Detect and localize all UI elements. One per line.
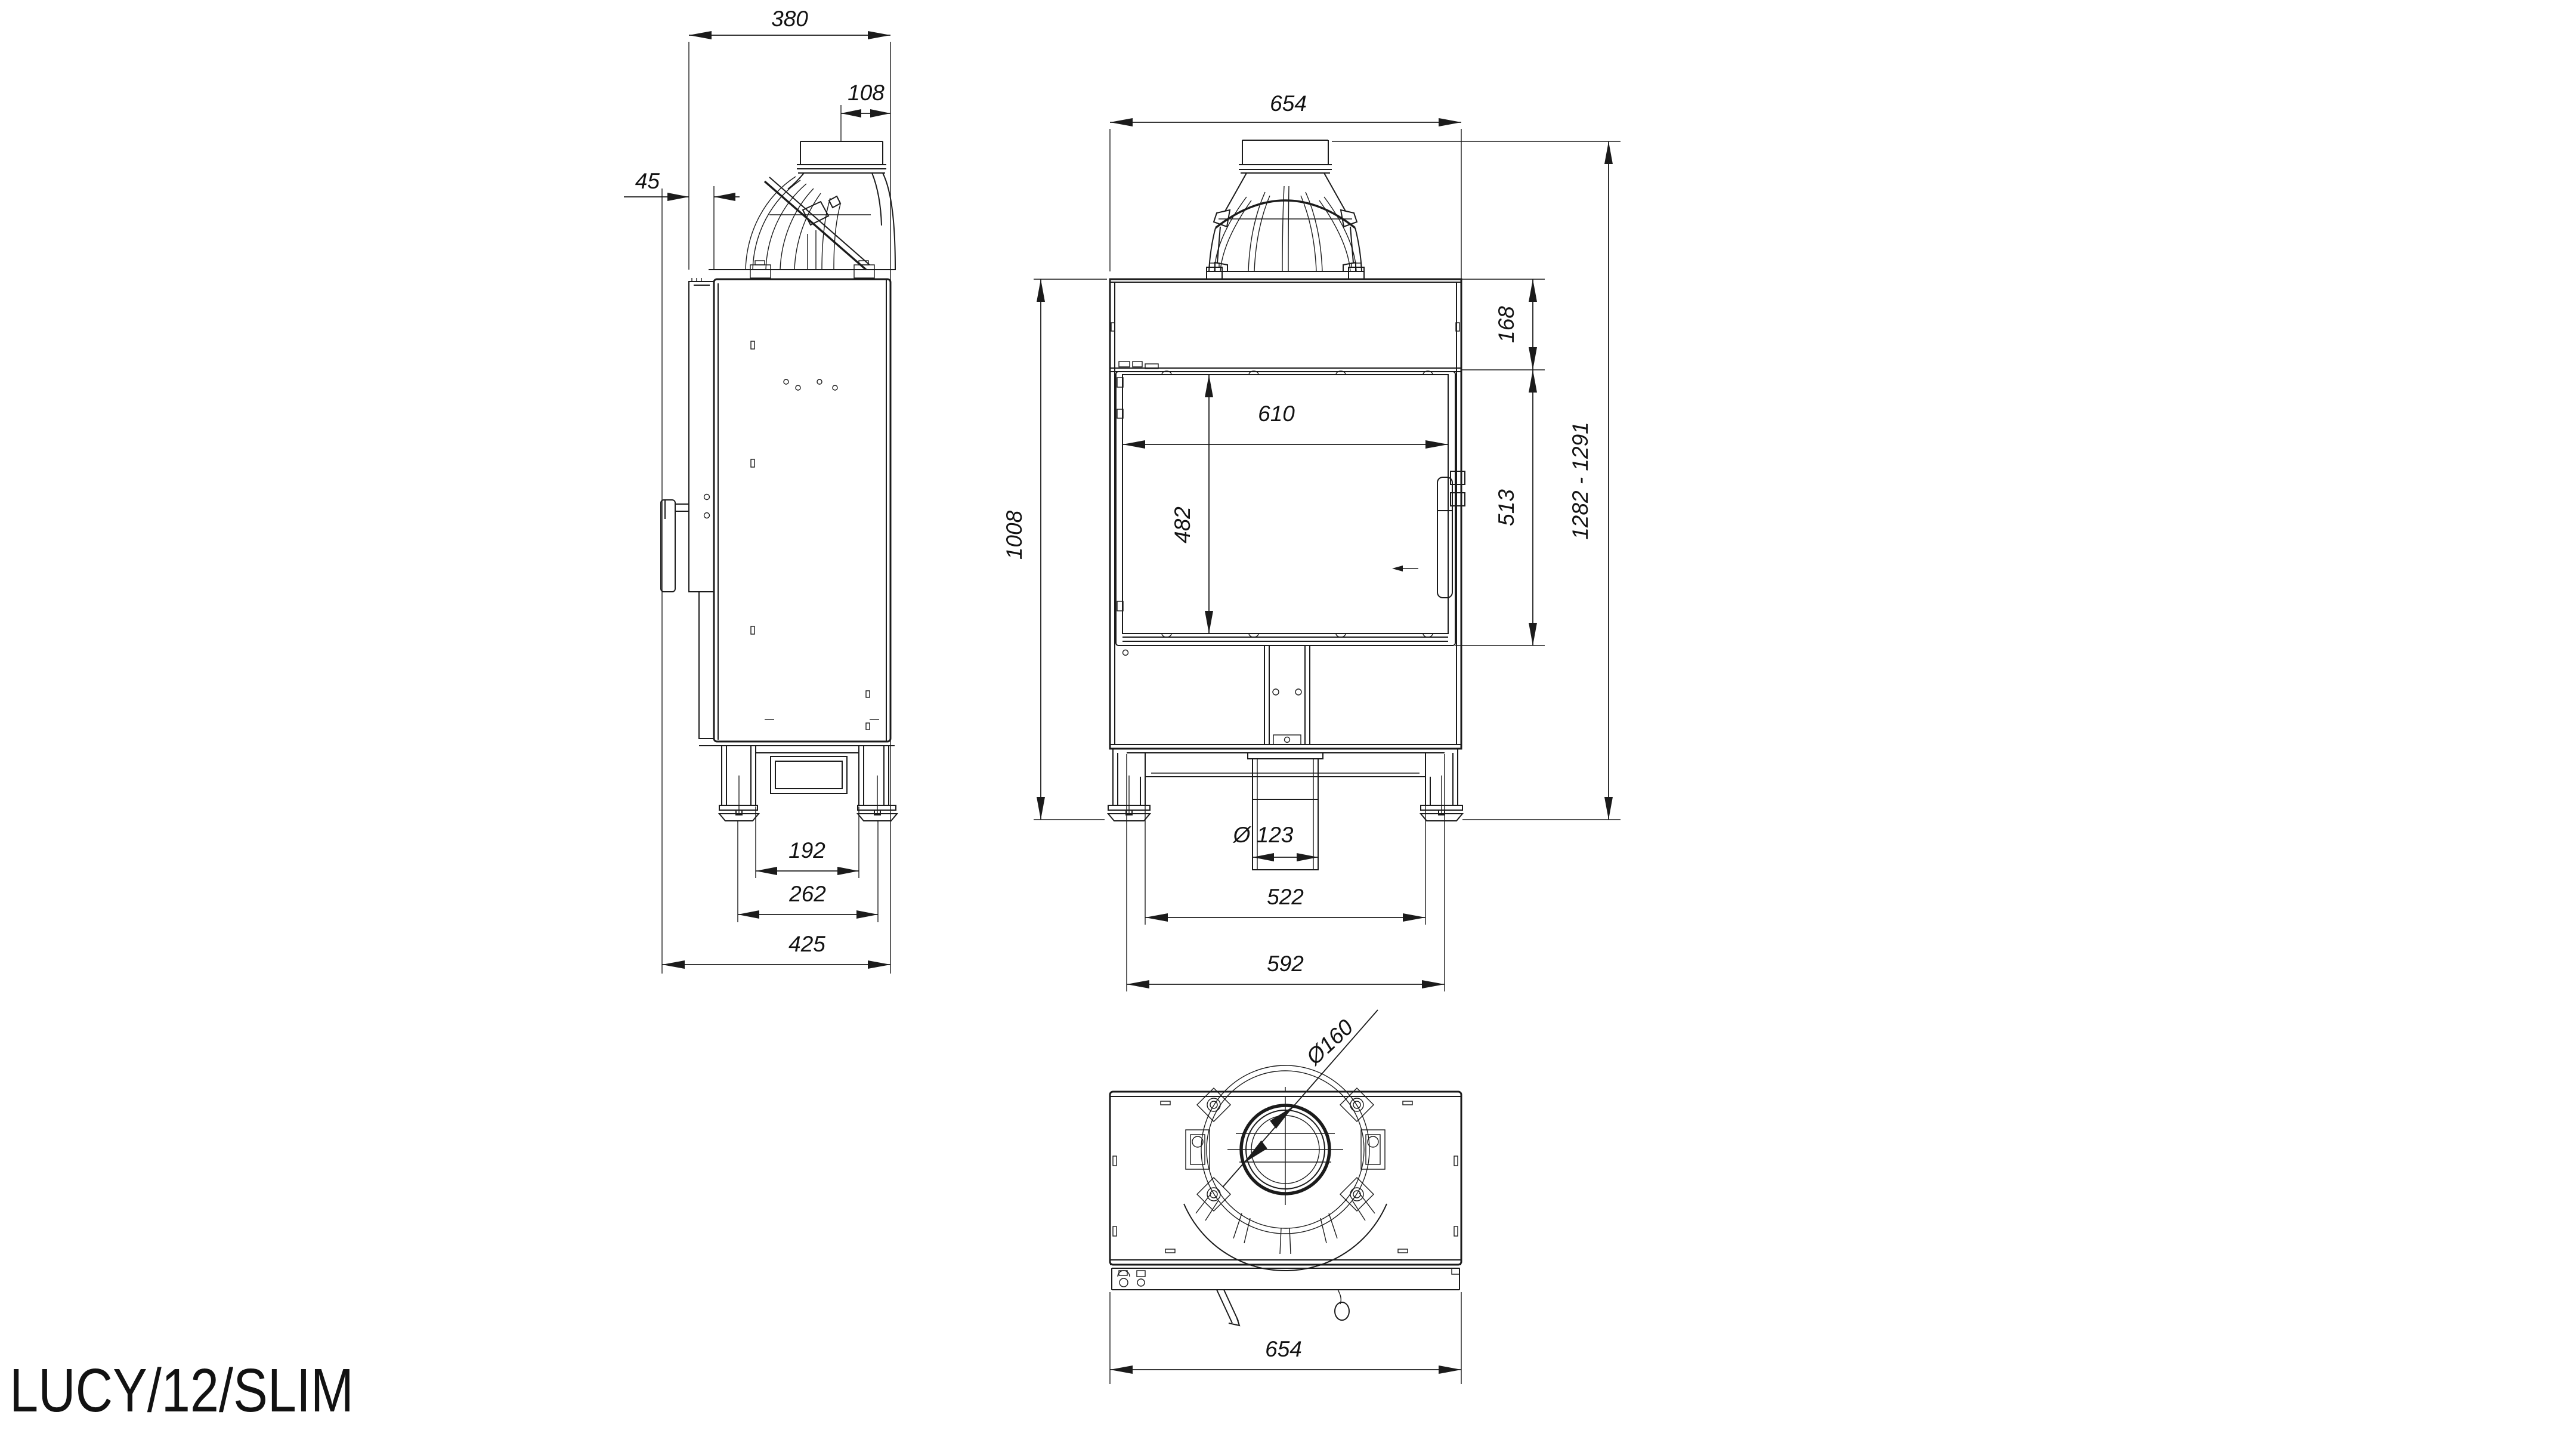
side-dim-flue-offset-label: 108 — [848, 81, 885, 105]
side-dim-body-depth: 380 — [689, 7, 890, 39]
top-dim-width-label: 654 — [1265, 1337, 1302, 1361]
side-door — [661, 278, 714, 739]
front-lever-arrow — [1392, 566, 1418, 571]
side-dim-door-protrusion-label: 45 — [635, 169, 660, 193]
front-flue-funnel — [1207, 140, 1364, 279]
front-pedestal — [1264, 645, 1310, 744]
front-dim-door-height: 513 — [1494, 370, 1537, 645]
front-dim-glass-height: 482 — [1170, 375, 1213, 634]
front-air-intake-pipe — [1248, 753, 1323, 870]
front-dim-body-height: 1008 — [1002, 279, 1045, 820]
side-extension-lines — [662, 42, 890, 974]
front-dim-glass-width: 610 — [1122, 401, 1448, 449]
side-dim-body-depth-label: 380 — [771, 7, 808, 31]
front-firebox-door: 610 482 — [1116, 371, 1465, 656]
side-dim-feet-centers: 262 — [738, 882, 878, 919]
side-dim-feet-inner: 192 — [756, 838, 859, 875]
front-dim-intake: Ø 123 — [1232, 823, 1318, 861]
side-dim-overall-depth-label: 425 — [788, 932, 825, 956]
front-base — [1108, 749, 1462, 870]
technical-drawing-page: 380 108 45 — [0, 0, 2576, 1449]
side-dim-overall-depth: 425 — [662, 932, 890, 969]
side-door-handle — [661, 500, 689, 592]
front-view: 654 — [1002, 91, 1621, 991]
side-dim-feet-inner-label: 192 — [788, 838, 825, 863]
front-dim-top-band-label: 168 — [1494, 306, 1519, 343]
side-feet — [719, 776, 897, 821]
drawing-title-text: LUCY/12/SLIM — [10, 1357, 354, 1425]
front-funnel-base — [1207, 263, 1364, 279]
side-body-slots — [751, 341, 879, 730]
front-body — [1110, 279, 1461, 749]
front-dim-intake-label: Ø 123 — [1232, 823, 1294, 847]
side-dim-feet-centers-label: 262 — [788, 882, 826, 906]
side-flue-brace — [765, 177, 870, 270]
side-body — [699, 261, 896, 746]
front-dim-plinth-label: 522 — [1267, 885, 1304, 909]
side-base — [719, 746, 897, 821]
top-door-tool — [1217, 1290, 1349, 1326]
drawing-title: LUCY/12/SLIM — [10, 1357, 354, 1425]
top-front-band — [1110, 1265, 1461, 1326]
front-dim-width-label: 654 — [1270, 91, 1307, 116]
side-dim-door-protrusion: 45 — [624, 169, 740, 201]
front-dim-top-band: 168 — [1494, 279, 1537, 370]
front-dim-door-height-label: 513 — [1494, 489, 1519, 526]
front-dim-plinth: 522 — [1145, 885, 1425, 922]
front-dim-glass-width-label: 610 — [1258, 401, 1295, 426]
front-dim-total-height: 1282 - 1291 — [1568, 141, 1613, 820]
front-dim-glass-height-label: 482 — [1170, 506, 1195, 543]
top-view: Ø160 — [1110, 1010, 1461, 1384]
side-view: 380 108 45 — [624, 7, 897, 974]
front-funnel-ribs — [1214, 186, 1356, 271]
side-dim-flue-offset: 108 — [841, 81, 890, 118]
front-dim-width: 654 — [1110, 91, 1461, 126]
front-dim-skirt: 592 — [1127, 951, 1445, 988]
front-legs — [1108, 749, 1462, 821]
front-dim-total-height-label: 1282 - 1291 — [1568, 422, 1592, 540]
side-flue-elbow — [746, 141, 895, 270]
fireplace-dimension-drawing: 380 108 45 — [0, 0, 2576, 1449]
front-dim-skirt-label: 592 — [1267, 951, 1304, 976]
front-band-details — [1111, 323, 1459, 369]
front-dim-body-height-label: 1008 — [1002, 510, 1026, 560]
top-dim-width: 654 — [1110, 1292, 1461, 1384]
